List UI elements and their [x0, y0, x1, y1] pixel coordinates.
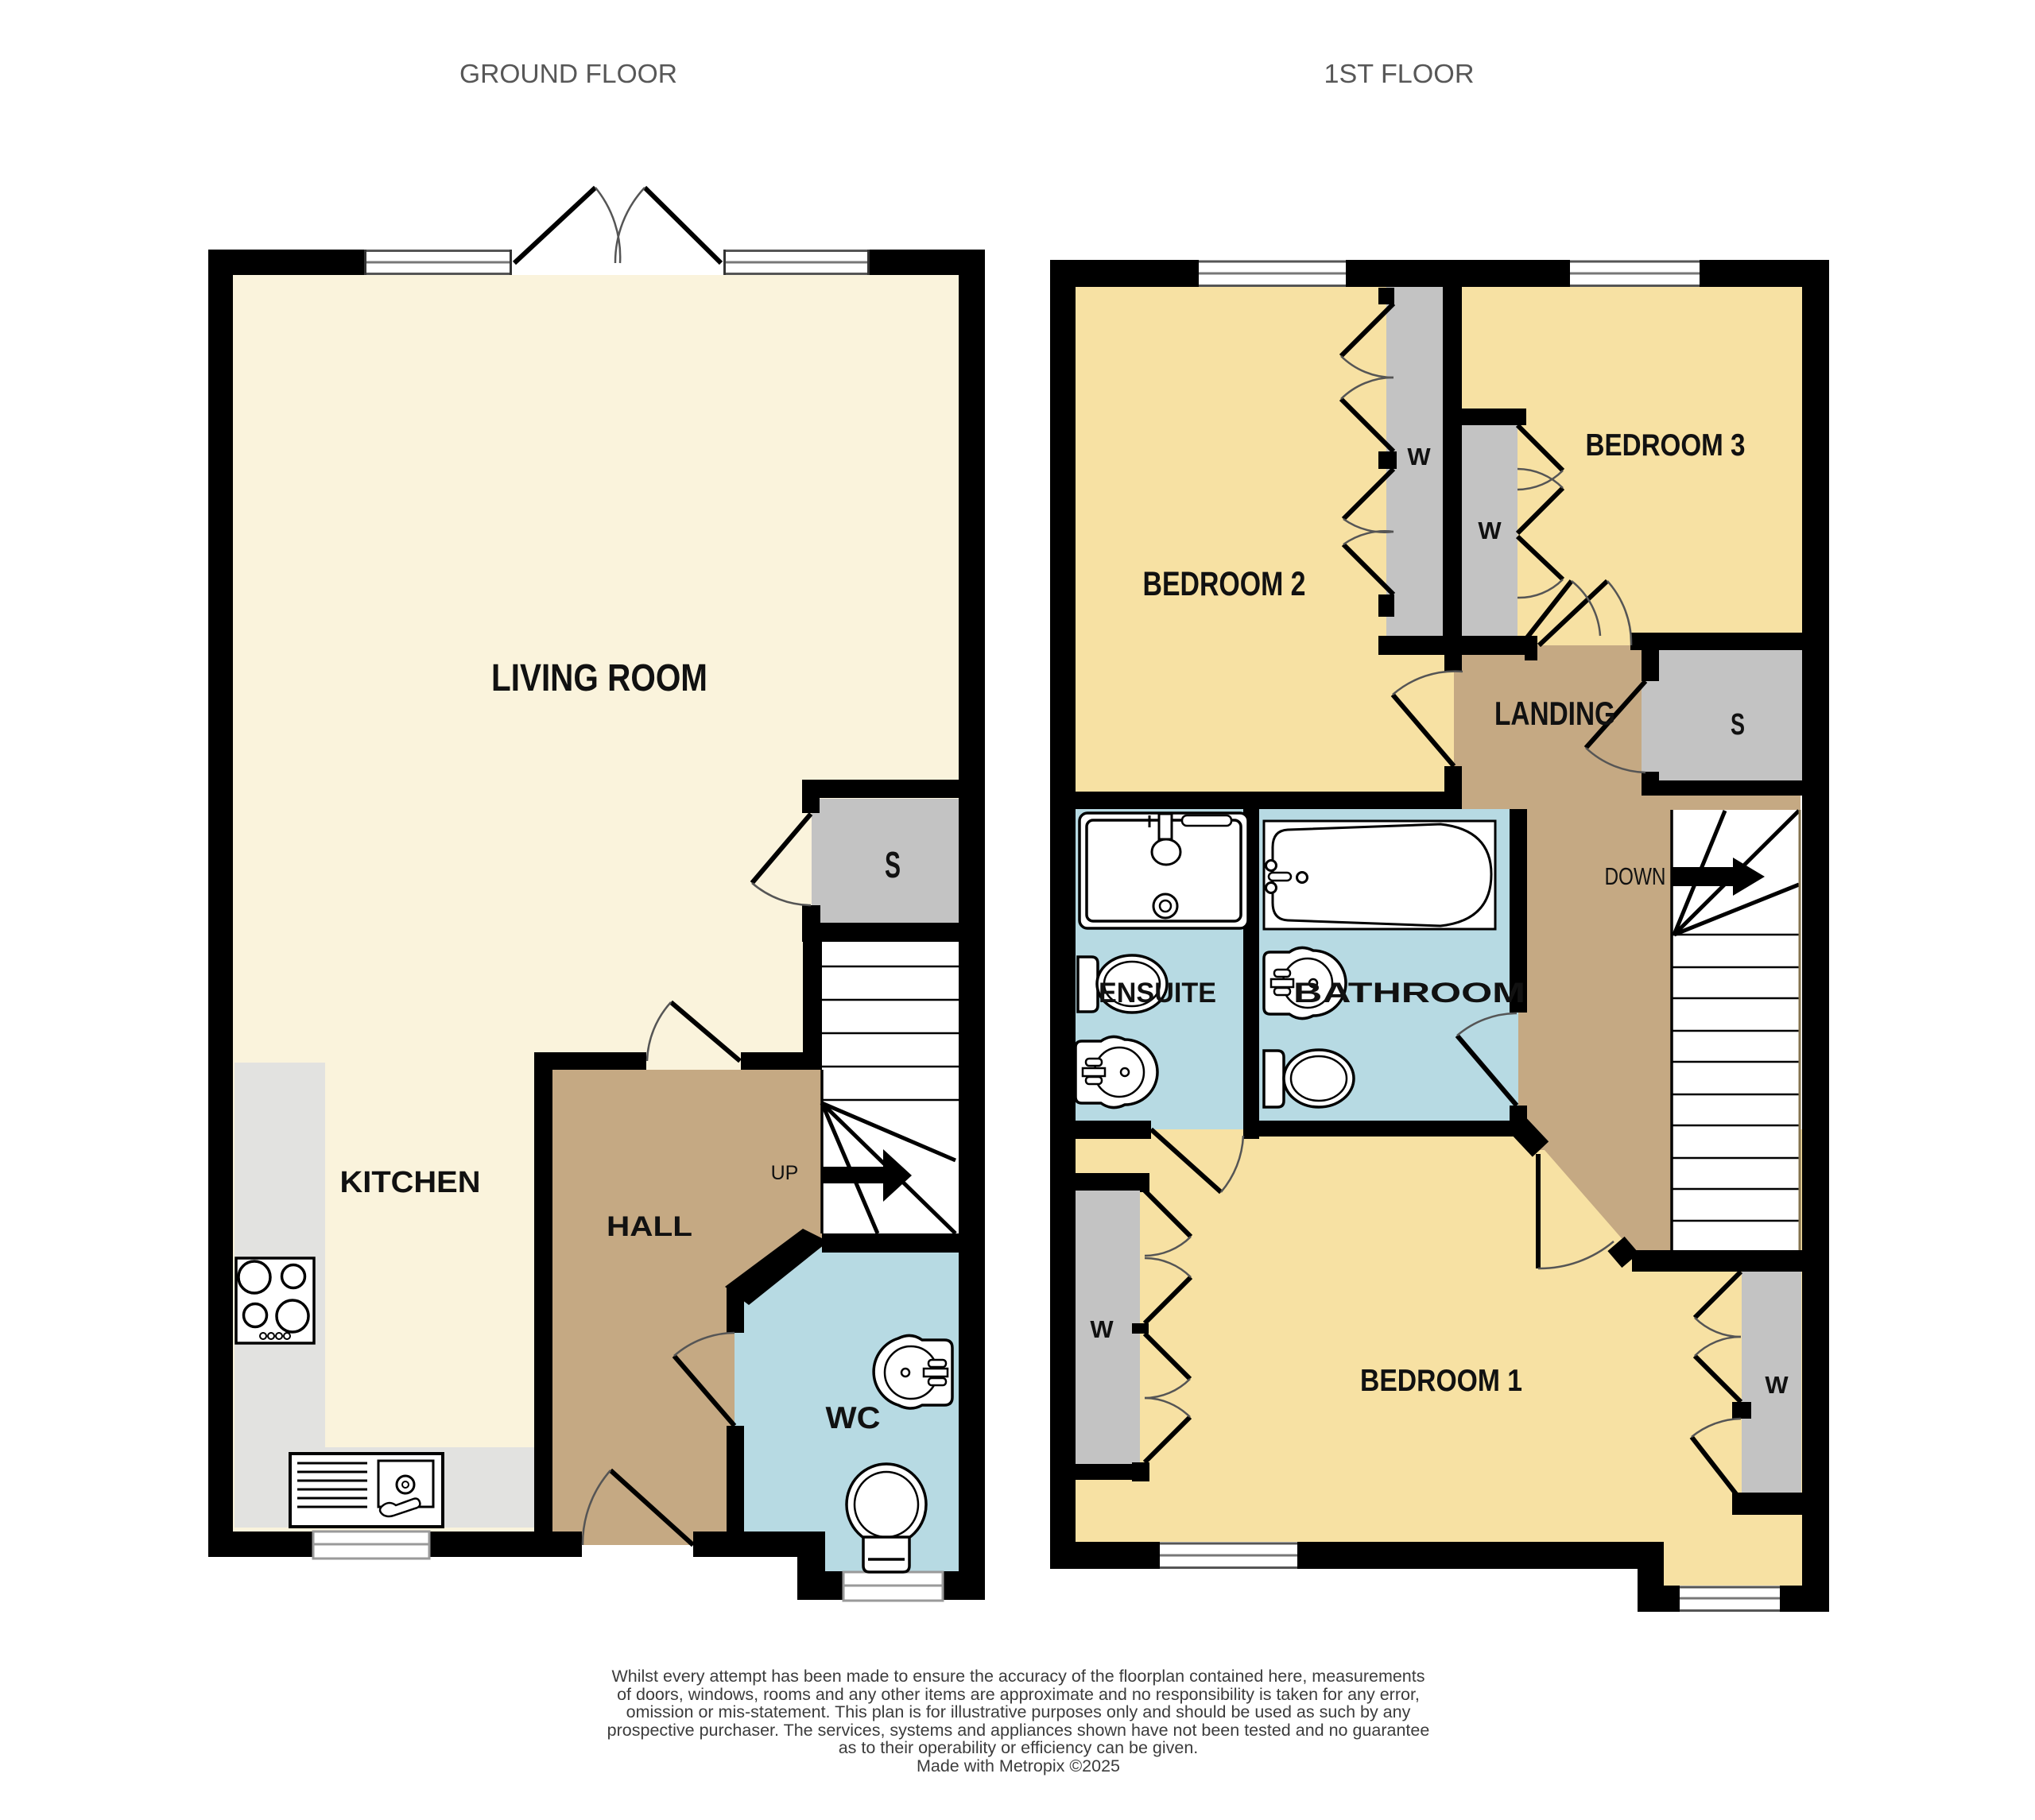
svg-text:S: S — [885, 844, 901, 885]
svg-text:prospective purchaser. The ser: prospective purchaser. The services, sys… — [607, 1721, 1430, 1740]
svg-text:DOWN: DOWN — [1605, 862, 1666, 890]
svg-text:WC: WC — [826, 1401, 881, 1435]
svg-text:omission or mis-statement. Thi: omission or mis-statement. This plan is … — [626, 1702, 1411, 1721]
svg-text:BEDROOM 2: BEDROOM 2 — [1143, 565, 1306, 603]
svg-text:S: S — [1731, 708, 1745, 742]
svg-text:BEDROOM 1: BEDROOM 1 — [1360, 1364, 1522, 1398]
svg-text:as to their operability or eff: as to their operability or efficiency ca… — [839, 1738, 1199, 1757]
svg-text:KITCHEN: KITCHEN — [340, 1166, 481, 1199]
svg-text:BEDROOM 3: BEDROOM 3 — [1586, 428, 1746, 463]
svg-text:Whilst every attempt has been: Whilst every attempt has been made to en… — [611, 1667, 1424, 1686]
svg-text:ENSUITE: ENSUITE — [1099, 978, 1216, 1009]
svg-text:UP: UP — [771, 1162, 799, 1184]
svg-text:1ST FLOOR: 1ST FLOOR — [1324, 60, 1475, 89]
svg-text:BATHROOM: BATHROOM — [1293, 978, 1525, 1009]
svg-text:LIVING ROOM: LIVING ROOM — [491, 657, 707, 699]
svg-text:of doors, windows, rooms and a: of doors, windows, rooms and any other i… — [617, 1685, 1420, 1704]
svg-text:W: W — [1478, 517, 1502, 544]
svg-text:W: W — [1090, 1315, 1114, 1343]
svg-text:HALL: HALL — [607, 1211, 692, 1242]
svg-text:W: W — [1407, 443, 1431, 470]
svg-text:Made with Metropix ©2025: Made with Metropix ©2025 — [917, 1756, 1120, 1775]
svg-text:GROUND FLOOR: GROUND FLOOR — [459, 60, 677, 89]
svg-text:LANDING: LANDING — [1494, 695, 1615, 732]
svg-text:W: W — [1765, 1371, 1789, 1399]
